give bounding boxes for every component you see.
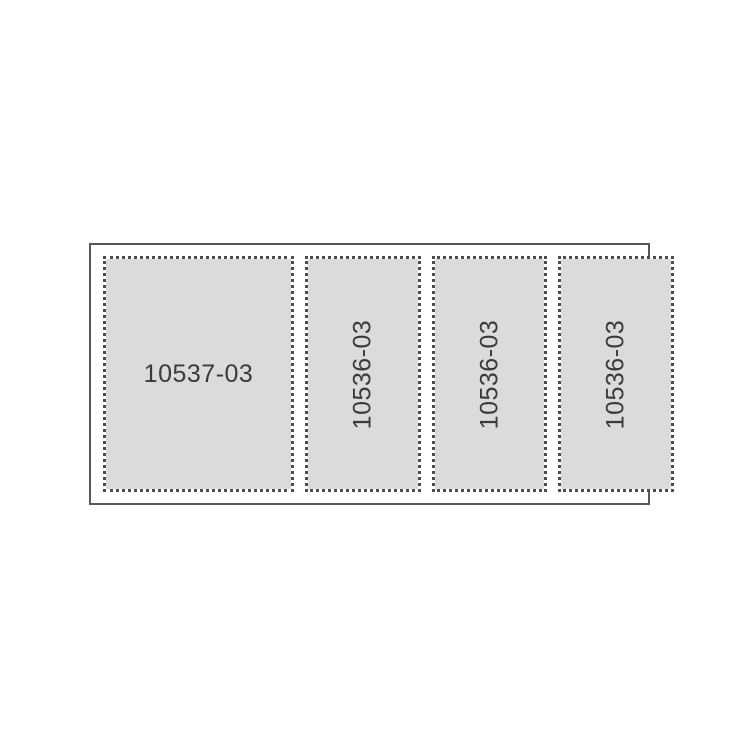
panel-label: 10536-03	[350, 319, 375, 429]
sheet-frame: 10537-03 10536-03 10536-03 10536-03	[89, 243, 650, 505]
diagram-canvas: 10537-03 10536-03 10536-03 10536-03	[0, 0, 752, 750]
panel-label: 10537-03	[144, 362, 254, 387]
perforated-panel-2: 10536-03	[305, 256, 421, 492]
panel-label: 10536-03	[477, 319, 502, 429]
perforated-panel-4: 10536-03	[558, 256, 674, 492]
perforated-panel-3: 10536-03	[432, 256, 548, 492]
panel-label: 10536-03	[604, 319, 629, 429]
perforated-panel-1: 10537-03	[103, 256, 294, 492]
